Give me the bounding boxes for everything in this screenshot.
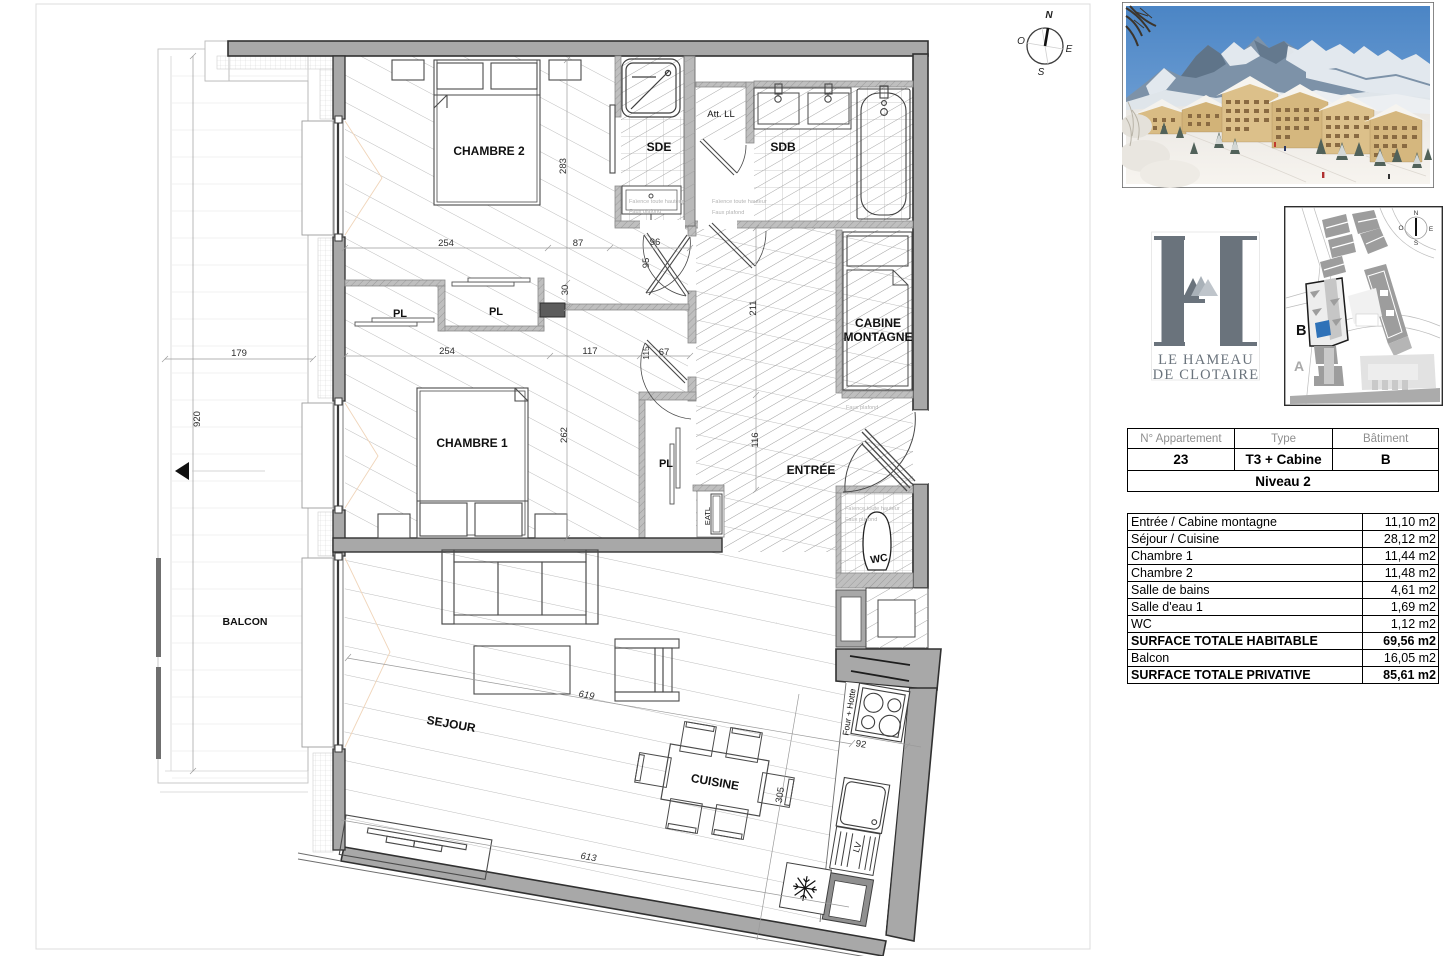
svg-text:262: 262 (559, 427, 570, 443)
svg-text:87: 87 (573, 238, 584, 249)
svg-text:A: A (1294, 358, 1304, 374)
svg-text:283: 283 (558, 158, 569, 174)
svg-text:211: 211 (748, 300, 759, 315)
svg-text:ENTRÉE: ENTRÉE (787, 462, 836, 477)
svg-text:S: S (1038, 67, 1045, 78)
svg-text:N: N (1414, 210, 1419, 217)
svg-text:N: N (1045, 10, 1053, 21)
svg-text:MONTAGNE: MONTAGNE (843, 330, 912, 344)
svg-text:B: B (1296, 323, 1306, 339)
svg-text:O: O (1398, 225, 1403, 232)
svg-text:179: 179 (231, 348, 247, 359)
svg-text:O: O (1017, 36, 1025, 47)
svg-text:Faux plafond: Faux plafond (712, 210, 744, 216)
svg-text:254: 254 (439, 346, 455, 357)
svg-text:BALCON: BALCON (223, 616, 268, 628)
svg-text:E: E (1429, 226, 1434, 233)
svg-text:95: 95 (641, 258, 652, 269)
svg-text:LE HAMEAU: LE HAMEAU (1158, 352, 1254, 368)
svg-text:Faux plafond: Faux plafond (629, 209, 661, 215)
svg-text:SDE: SDE (647, 140, 672, 154)
svg-text:116: 116 (750, 432, 761, 447)
svg-text:Faïence toute hauteur: Faïence toute hauteur (845, 506, 900, 512)
svg-text:117: 117 (582, 346, 597, 357)
svg-text:CHAMBRE 1: CHAMBRE 1 (436, 436, 508, 450)
svg-text:CABINE: CABINE (855, 316, 901, 330)
svg-text:E: E (1066, 44, 1073, 55)
svg-text:CHAMBRE 2: CHAMBRE 2 (453, 144, 525, 158)
svg-text:115: 115 (641, 346, 651, 360)
svg-text:PL: PL (659, 458, 673, 470)
svg-text:920: 920 (192, 411, 203, 427)
svg-text:92: 92 (855, 738, 867, 751)
svg-text:30: 30 (560, 285, 571, 296)
svg-text:254: 254 (438, 238, 454, 249)
svg-text:DE CLOTAIRE: DE CLOTAIRE (1153, 367, 1260, 382)
svg-text:Faïence toute hauteur: Faïence toute hauteur (629, 199, 684, 205)
svg-text:Att. LL: Att. LL (707, 109, 734, 120)
svg-text:Faux plafond: Faux plafond (846, 405, 878, 411)
svg-text:SDB: SDB (770, 140, 796, 154)
svg-text:67: 67 (659, 347, 670, 358)
svg-text:PL: PL (393, 308, 407, 320)
svg-text:Faux plafond: Faux plafond (845, 517, 877, 523)
svg-text:PL: PL (489, 306, 503, 318)
svg-text:EATL: EATL (703, 507, 712, 525)
svg-text:S: S (1414, 240, 1419, 247)
svg-text:Faïence toute hauteur: Faïence toute hauteur (712, 199, 767, 205)
svg-text:96: 96 (650, 237, 661, 248)
